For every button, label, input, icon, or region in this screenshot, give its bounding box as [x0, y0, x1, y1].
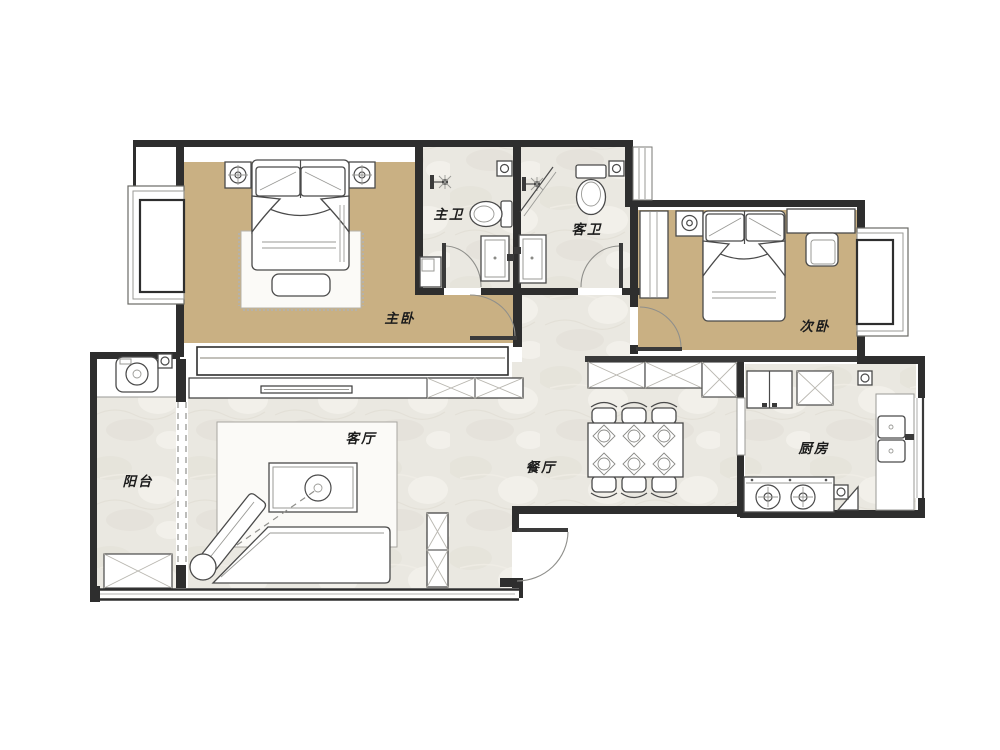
nightstand-left	[225, 162, 251, 188]
burner	[756, 485, 780, 509]
nightstand-right	[349, 162, 375, 188]
entry-door	[517, 528, 568, 581]
corner-drain-marker	[497, 161, 512, 176]
shower-tray	[420, 257, 441, 287]
bay-window-left	[128, 186, 184, 304]
washing-machine	[116, 357, 158, 392]
bay-window-right	[857, 228, 908, 336]
shaft-hatch	[633, 147, 652, 200]
kitchen-doorway	[737, 398, 745, 455]
coffee-table	[269, 463, 357, 512]
corner-drain-marker	[609, 161, 624, 176]
room-label-master-bath: 主卫	[434, 207, 465, 223]
dresser	[787, 209, 855, 233]
stove-counter	[744, 477, 834, 512]
room-label-guest-bath: 客卫	[572, 222, 603, 238]
hallway-floor	[522, 295, 630, 365]
room-label-dining-room: 餐厅	[526, 460, 558, 476]
floor-plan: 主卧 主卫	[0, 0, 1000, 750]
side-table	[190, 554, 216, 580]
double-bed	[703, 211, 785, 321]
chair	[806, 233, 838, 266]
wardrobe-band	[197, 347, 508, 375]
room-label-kitchen: 厨房	[798, 441, 830, 457]
room-label-balcony: 阳台	[123, 474, 154, 490]
vanity-sink	[481, 236, 514, 281]
vanity-sink	[514, 235, 546, 283]
fridge	[747, 371, 792, 408]
room-label-living-room: 客厅	[346, 431, 377, 447]
corner-drain-marker	[858, 371, 872, 385]
corner-drain-marker	[158, 354, 172, 368]
nightstand	[676, 211, 703, 236]
tv-console-band	[189, 378, 523, 398]
room-label-second-bedroom: 次卧	[800, 319, 831, 335]
toilet	[470, 201, 512, 227]
burner	[791, 485, 815, 509]
tall-cabinet	[427, 513, 448, 587]
tv	[261, 386, 352, 393]
double-bed	[252, 160, 349, 270]
living-room: 客厅	[190, 422, 397, 583]
wardrobe	[640, 211, 668, 298]
balcony-cabinet	[104, 554, 172, 588]
room-label-master-bedroom: 主卧	[385, 311, 416, 327]
bed-end-bench	[272, 274, 330, 296]
toilet	[576, 165, 606, 215]
upper-cabinet	[797, 371, 833, 405]
sink-counter	[876, 394, 914, 510]
floor-plan-canvas: 主卧 主卫	[0, 0, 1000, 750]
